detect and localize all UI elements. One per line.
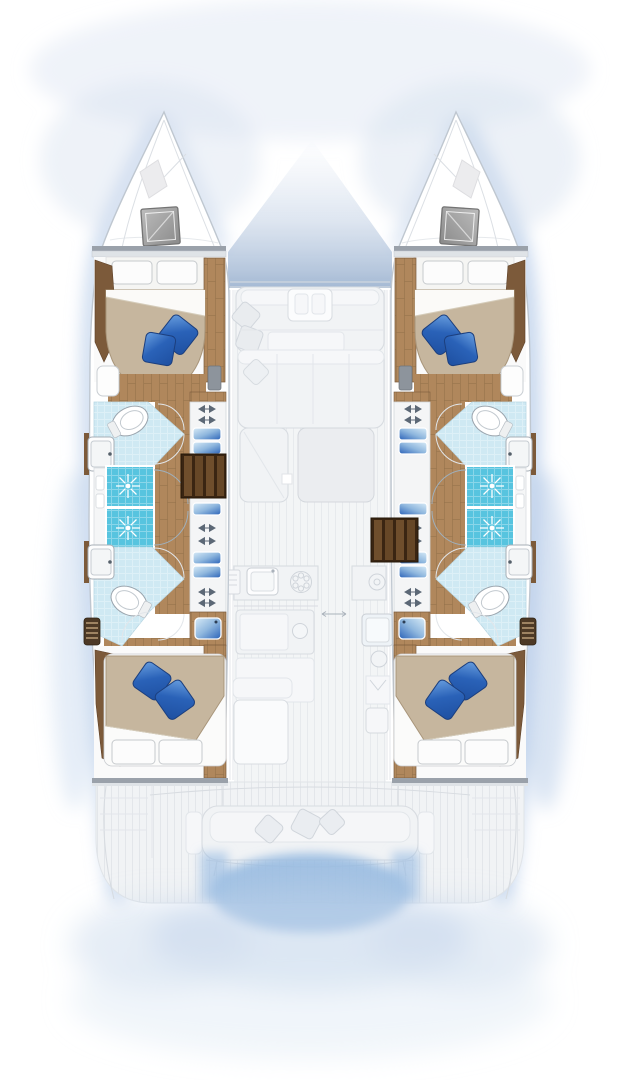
cockpit-table [233,678,292,764]
catamaran-floorplan [0,0,618,1080]
stern-wash [70,886,550,1058]
floorplan-svg [0,0,618,1080]
saloon-table [298,428,374,502]
galley-sink-icon [247,568,278,595]
stove-burner-icon [369,574,385,590]
port-companionway-stairs [181,454,226,498]
forward-cockpit [231,287,384,354]
starboard-companionway-stairs [371,518,418,562]
saloon [238,350,384,502]
stove-burner-icon [291,572,312,593]
